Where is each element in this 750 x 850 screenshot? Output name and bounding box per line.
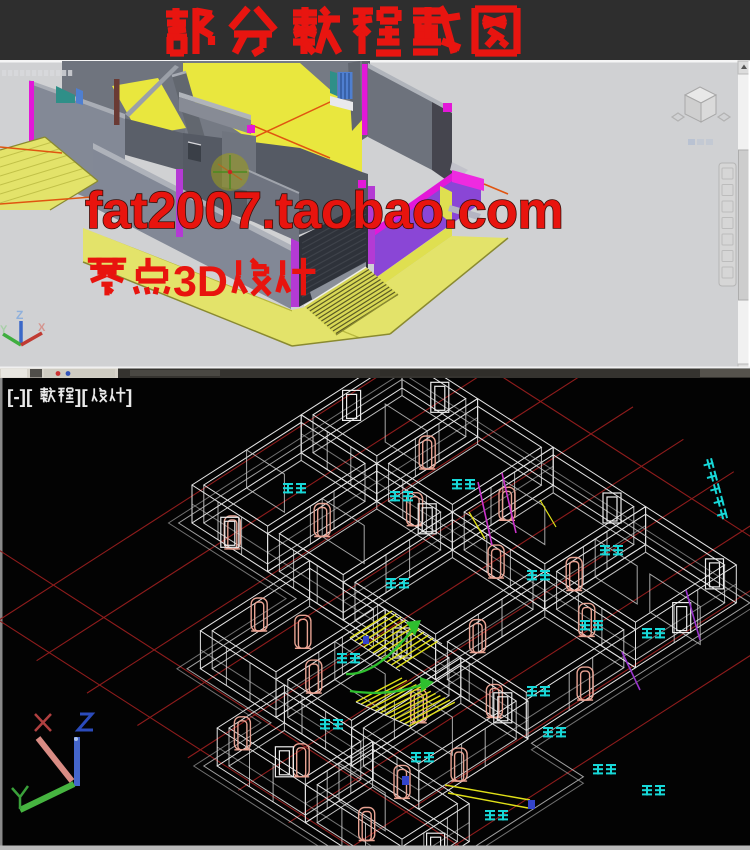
svg-text:Y: Y xyxy=(0,324,8,336)
svg-text:]: ] xyxy=(126,387,132,408)
svg-text:X: X xyxy=(38,322,46,334)
svg-text:Z: Z xyxy=(16,308,23,322)
svg-text:fat2007.taobao.com: fat2007.taobao.com xyxy=(85,182,563,240)
svg-text:3D: 3D xyxy=(173,258,228,306)
svg-text:][: ][ xyxy=(75,387,88,408)
svg-text:[-][: [-][ xyxy=(7,387,33,408)
